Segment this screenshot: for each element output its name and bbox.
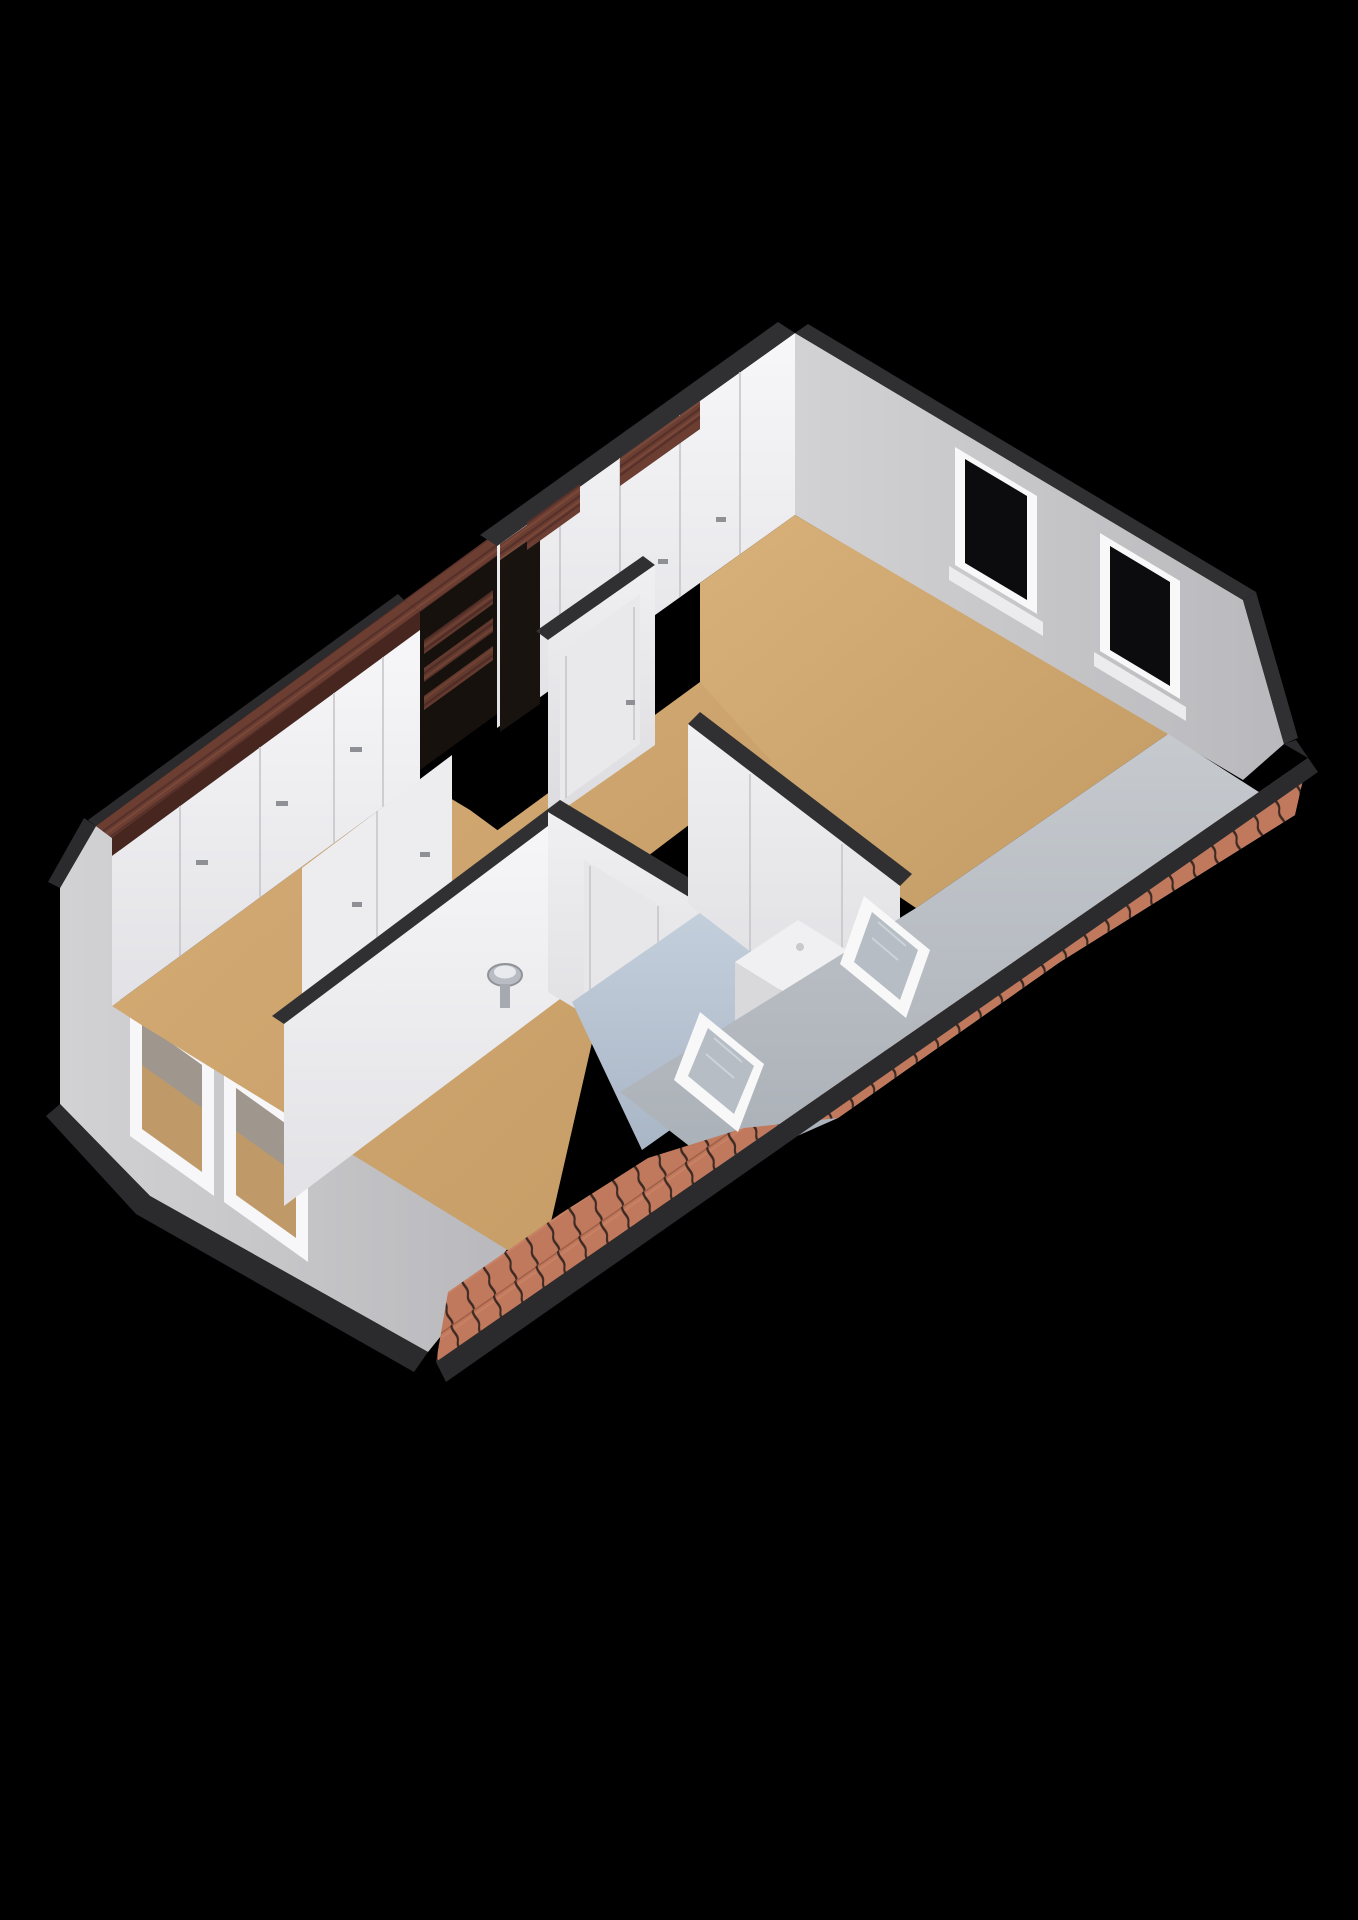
drain bbox=[796, 943, 804, 951]
basin-pedestal bbox=[500, 984, 510, 1008]
closet-doorway-void bbox=[500, 532, 540, 732]
floorplan-canvas: 3d-floorplan-attic-storey bbox=[0, 0, 1358, 1920]
floorplan-3d-render: 3d-floorplan-attic-storey bbox=[0, 0, 1358, 1920]
